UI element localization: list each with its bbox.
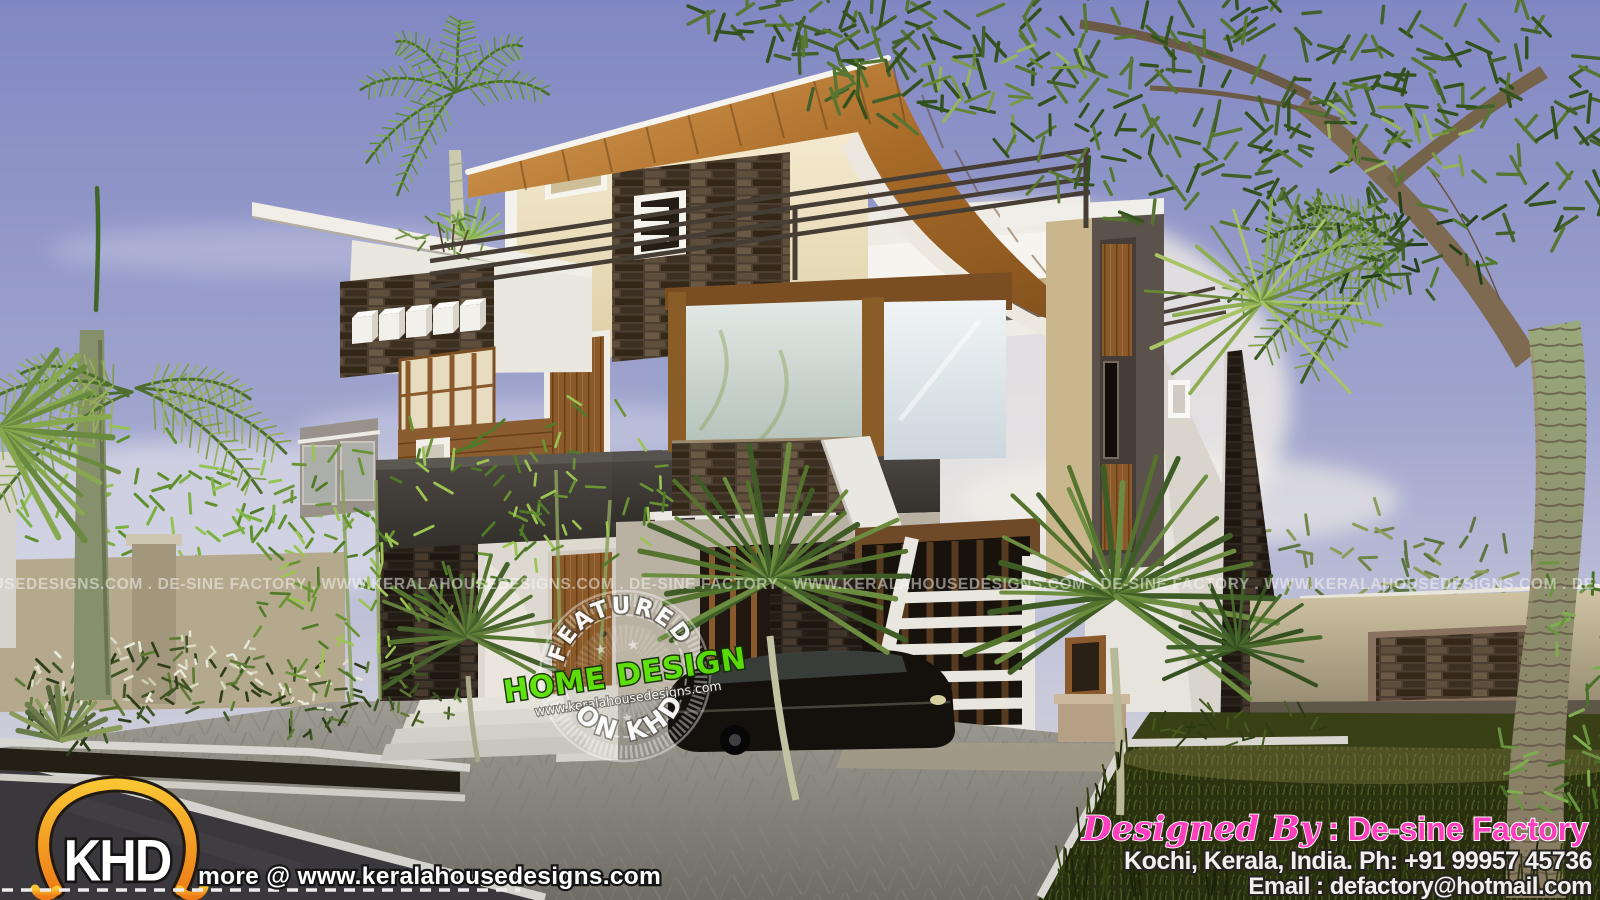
foliage-stroke [739,31,753,32]
foliage-stroke [1227,718,1228,728]
foliage-stroke [777,0,792,2]
foliage-stroke [187,646,195,647]
foliage-stroke [1388,274,1410,275]
foliage-stroke [124,685,125,698]
foliage-stroke [1518,145,1520,166]
credit-email: Email : defactory@hotmail.com [1248,873,1592,900]
foliage-stroke [656,466,668,467]
foliage-stroke [1424,58,1453,59]
foliage-stroke [124,699,129,700]
foliage-stroke [234,389,235,406]
logo-tagline: more @ www.keralahousedesigns.com [198,863,661,890]
foliage-stroke [586,487,605,488]
foliage-stroke [327,709,331,710]
tower-wood-panel [1102,244,1132,356]
foliage-stroke [412,674,425,675]
foliage-stroke [1508,791,1521,793]
foliage-stroke [871,0,872,12]
foliage-stroke [942,96,943,111]
foliage-stroke [335,689,346,690]
foliage-stroke [1272,236,1273,257]
foliage-stroke [1389,141,1412,142]
foliage-stroke [182,636,183,641]
foliage-stroke [1363,50,1376,51]
foliage-stroke [954,55,981,57]
foliage-stroke [1466,255,1467,265]
foliage-stroke [1357,150,1358,163]
foliage-stroke [119,720,130,722]
foliage-stroke [907,0,909,9]
foliage-stroke [1328,125,1329,137]
foliage-stroke [243,468,259,469]
foliage-stroke [227,654,232,656]
foliage-stroke [1458,106,1476,107]
headlight [930,695,946,705]
foliage-stroke [1085,5,1087,32]
foliage-stroke [113,365,114,386]
foliage-stroke [172,518,174,534]
foliage-stroke [1360,557,1376,558]
foliage-stroke [357,678,362,680]
watermark-band: WWW.KERALAHOUSEDESIGNS.COM . DE-SINE FAC… [0,576,1600,593]
foliage-stroke [367,663,369,672]
logo-brand-text: KHD [64,828,171,893]
palm-spike-leaf [96,188,98,310]
rear-wood-window-glass [1072,642,1099,692]
foliage-stroke [555,496,567,497]
foliage-stroke [299,701,303,702]
foliage-stroke [242,418,243,443]
foliage-stroke [1076,184,1093,185]
foliage-stroke [473,468,481,470]
credit-location-phone: Kochi, Kerala, India. Ph: +91 99957 4573… [1124,847,1592,875]
foliage-stroke [0,484,10,485]
foliage-stroke [104,361,105,382]
foliage-stroke [1141,65,1157,67]
wall-stone-panel [1376,631,1540,701]
glass-balustrade-panel [303,446,336,504]
foliage-stroke [1365,202,1366,221]
foliage-stroke [1168,647,1238,648]
foliage-stroke [1303,12,1321,14]
foliage-stroke [139,642,140,651]
foliage-stroke [918,101,936,102]
foliage-stroke [322,649,323,666]
rendered-house-image: WWW.KERALAHOUSEDESIGNS.COM . DE-SINE FAC… [0,0,1600,900]
foliage-stroke [1359,266,1360,302]
foliage-stroke [535,474,536,486]
foliage-stroke [1595,762,1600,763]
foliage-stroke [234,413,235,439]
foliage-stroke [227,450,245,451]
foliage-stroke [1407,105,1428,107]
foliage-stroke [398,702,399,712]
foliage-stroke [317,504,331,505]
foliage-stroke [369,85,370,99]
corner-post [862,297,884,458]
foliage-stroke [190,494,191,514]
foliage-stroke [290,689,291,693]
foliage-stroke [1116,36,1135,38]
foliage-stroke [1267,320,1287,321]
foliage-stroke [1382,6,1384,23]
foliage-stroke [540,89,541,103]
foliage-stroke [535,559,537,572]
foliage-stroke [270,480,281,482]
foliage-stroke [173,407,174,438]
foliage-stroke [1249,345,1266,346]
foliage-stroke [983,28,984,56]
foliage-stroke [1223,175,1250,177]
foliage-stroke [799,44,800,74]
rear-slot-window-glass [1173,385,1185,413]
foliage-stroke [292,491,293,502]
foliage-stroke [365,151,376,152]
foliage-stroke [858,65,859,95]
foliage-stroke [1295,79,1310,80]
foliage-stroke [271,593,290,594]
foliage-stroke [495,38,496,52]
foliage-stroke [412,237,425,238]
foliage-stroke [283,689,284,695]
foliage-stroke [1505,747,1517,748]
foliage-stroke [313,445,314,460]
foliage-stroke [273,506,274,522]
foliage-stroke [570,451,580,452]
foliage-stroke [1087,157,1089,186]
credit-line-designer: Designed By : De-sine Factory [1081,809,1588,849]
foliage-stroke [802,37,803,56]
foliage-stroke [32,681,33,686]
foliage-stroke [648,508,649,525]
foliage-stroke [1368,190,1370,204]
foliage-stroke [207,660,208,666]
foliage-stroke [246,693,248,701]
foliage-stroke [251,527,252,539]
designed-by-script: Designed By [1081,809,1322,849]
foliage-stroke [293,464,305,465]
foliage-stroke [708,12,709,34]
foliage-stroke [974,48,975,68]
foliage-stroke [1153,200,1155,223]
foliage-stroke [193,702,203,704]
foliage-stroke [1236,0,1237,9]
foliage-stroke [382,543,383,561]
foliage-stroke [195,660,196,664]
foliage-stroke [1332,298,1355,299]
foliage-stroke [1167,69,1190,71]
foliage-stroke [170,638,179,639]
window-jamb [668,292,686,452]
foliage-stroke [117,527,128,528]
foliage-stroke [644,508,646,525]
foliage-stroke [1498,174,1520,175]
corner-glass-window-right [884,300,1006,460]
foliage-stroke [607,522,608,535]
foliage-stroke [376,135,388,136]
foliage-stroke [1058,176,1059,202]
foliage-stroke [1199,725,1207,726]
foliage-stroke [313,694,314,701]
foliage-stroke [805,30,806,46]
foliage-stroke [423,448,425,465]
foliage-stroke [515,543,516,554]
foliage-stroke [348,555,357,557]
designer-name: : De-sine Factory [1319,811,1588,847]
foliage-stroke [447,230,448,240]
foliage-stroke [1400,193,1402,212]
foliage-stroke [258,603,267,605]
foliage-stroke [479,553,490,554]
foliage-stroke [1052,67,1078,68]
foliage-stroke [1104,218,1126,220]
tower-slit-window [1104,362,1118,458]
foliage-stroke [1010,96,1033,98]
foliage-stroke [378,634,379,653]
